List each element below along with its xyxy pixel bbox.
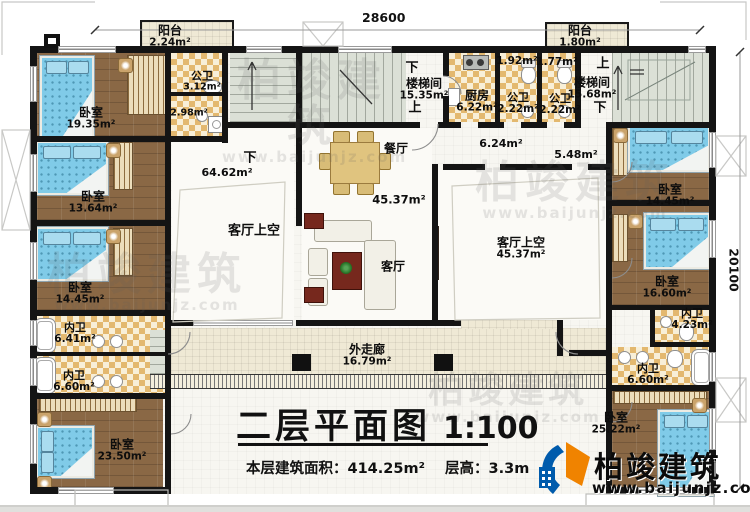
room-area: 13.64m² [69, 204, 118, 216]
stairs-right-down-label: 下 [593, 102, 606, 117]
wall [30, 310, 171, 316]
wall [478, 122, 504, 128]
room-area: 3.12m² [183, 83, 221, 94]
wall [443, 46, 449, 76]
wall [30, 393, 171, 399]
nightstand-lamp [628, 214, 643, 229]
nightstand-lamp [106, 143, 121, 158]
room-area: 1.92m² [496, 56, 537, 68]
room-label-balcony-tl: 阳台2.24m² [149, 24, 190, 49]
window [30, 358, 37, 386]
side-cabinet [304, 213, 324, 229]
area-label-177: 1.77m² [536, 57, 577, 69]
dimension-top: 28600 [362, 10, 406, 25]
void-left-area: 64.62m² [201, 167, 252, 179]
room-label-stairs-right: 楼梯间15.68m² [568, 76, 617, 101]
title-underline [238, 443, 488, 446]
floor-stats: 本层建筑面积：414.25m² 层高：3.3m [246, 457, 529, 478]
wall [228, 122, 420, 128]
floor-height-label: 层高： [445, 461, 489, 477]
room-area: 2.98m² [170, 109, 208, 120]
wall [564, 122, 581, 128]
stairs-left-flight-b [302, 53, 406, 122]
room-label-bedroom-tl: 卧室19.35m² [67, 106, 116, 131]
room-label-balcony-tr: 阳台1.80m² [559, 24, 600, 49]
room-area: 6.41m² [54, 334, 95, 346]
bed-bedroom-l2 [36, 141, 108, 195]
room-label-bedroom-r1: 卧室14.45m² [646, 183, 695, 208]
room-name: 阳台 [559, 24, 600, 37]
window [30, 66, 37, 102]
room-area: 2.24m² [149, 38, 190, 50]
dining-chair [333, 183, 350, 195]
wall [557, 320, 563, 356]
room-name: 厨房 [456, 89, 497, 102]
window [338, 46, 392, 53]
side-cabinet [304, 287, 324, 303]
title-block: 二层平面图1:100 [236, 398, 539, 449]
wall [500, 164, 572, 170]
room-label-bath-l1: 内卫6.41m² [54, 322, 95, 346]
room-name: 楼梯间 [400, 77, 449, 90]
window [58, 487, 114, 494]
room-label-kitchen: 厨房6.22m² [456, 89, 497, 114]
nightstand-lamp [118, 58, 133, 73]
area-label-192: 1.92m² [496, 56, 537, 68]
sink [660, 316, 672, 328]
wall [30, 136, 228, 142]
stairs-left-flight-a [230, 53, 296, 122]
room-label-bedroom-br: 卧室25.22m² [592, 411, 641, 436]
room-area: 2.22m² [539, 105, 580, 117]
room-label-bath-r1: 内卫4.23m² [671, 308, 712, 332]
sink [110, 375, 123, 388]
window [30, 320, 37, 346]
room-area: 5.48m² [554, 149, 597, 161]
window [688, 46, 706, 53]
room-label-bedroom-r2: 卧室16.60m² [643, 275, 692, 300]
area-label-624: 6.24m² [479, 138, 522, 150]
room-label-bath-l2: 内卫6.60m² [53, 370, 94, 394]
bed-bedroom-bl [36, 426, 94, 478]
room-area: 6.60m² [53, 382, 94, 394]
wall [443, 122, 461, 128]
wall [606, 122, 716, 128]
window [30, 154, 37, 192]
nightstand-lamp [106, 229, 121, 244]
bed-bedroom-r1 [628, 126, 710, 172]
nightstand-lamp [613, 128, 628, 143]
floor-area-value: 414.25m² [348, 461, 425, 477]
wall [650, 342, 716, 347]
room-area: 16.79m² [343, 357, 392, 369]
room-name: 外走廊 [343, 343, 392, 356]
room-name: 客厅上空 [228, 225, 280, 240]
wall [650, 305, 655, 347]
window [58, 46, 116, 53]
wall [30, 220, 171, 226]
room-area: 14.45m² [646, 197, 695, 209]
room-area: 15.35m² [400, 91, 449, 103]
wall [443, 164, 485, 170]
room-area: 6.60m² [627, 375, 668, 387]
floor-height-value: 3.3m [489, 461, 530, 477]
wall [569, 350, 609, 356]
armchair [308, 248, 328, 276]
window [30, 242, 37, 280]
room-label-bath-tl: 公卫3.12m² [183, 71, 221, 94]
room-area: 16.60m² [643, 289, 692, 301]
nightstand-lamp [37, 412, 52, 427]
sink [110, 335, 123, 348]
stairs-left-up-label: 上 [408, 102, 421, 117]
room-name: 卧室 [69, 190, 118, 203]
room-name: 餐厅 [384, 142, 408, 155]
room-area: 45.37m² [497, 250, 546, 262]
stove [463, 55, 489, 70]
window [709, 132, 716, 168]
wall [521, 122, 547, 128]
sofa-section [364, 240, 396, 310]
room-label-bath-r2: 内卫6.60m² [627, 363, 668, 387]
dining-table [330, 142, 380, 184]
window [193, 320, 293, 326]
brand-website: www.baijunjz.com [592, 479, 750, 497]
room-label-bath-tl-b: 2.98m² [170, 109, 208, 120]
dimension-right: 20100 [727, 248, 742, 292]
bathtub [34, 318, 56, 353]
living-corridor-threshold [461, 320, 557, 329]
room-label-bedroom-bl: 卧室23.50m² [98, 438, 147, 463]
room-area: 14.45m² [56, 295, 105, 307]
logo-building-shape [566, 442, 590, 486]
drawing-scale: 1:100 [443, 411, 539, 446]
bed-bedroom-r2 [644, 213, 710, 269]
void-left-down-label: 下 [243, 152, 256, 167]
nightstand-lamp [692, 398, 707, 413]
page-title: 二层平面图 [236, 407, 431, 447]
room-name: 阳台 [149, 24, 190, 37]
room-label-living: 客厅 [381, 260, 405, 273]
toilet [667, 350, 683, 368]
room-name: 卧室 [98, 438, 147, 451]
room-name: 客厅上空 [497, 236, 546, 249]
wall [432, 164, 438, 325]
room-label-void-right: 客厅上空45.37m² [497, 236, 546, 261]
wall [296, 46, 302, 128]
room-label-bedroom-l2: 卧室13.64m² [69, 190, 118, 215]
wall [588, 164, 608, 170]
floor-area-label: 本层建筑面积： [246, 461, 348, 477]
room-label-corridor: 外走廊16.79m² [343, 343, 392, 368]
room-area: 6.22m² [456, 103, 497, 115]
wall [165, 320, 195, 326]
room-name: 卧室 [592, 411, 641, 424]
window [246, 46, 282, 53]
floor-plan: 柏竣建筑www.baijunjz.com 柏竣建筑www.baijunjz.co… [0, 0, 750, 512]
room-area: 4.23m² [671, 320, 712, 332]
logo-block [539, 467, 555, 488]
room-area: 1.80m² [559, 38, 600, 50]
room-name: 卧室 [56, 281, 105, 294]
corridor-parapet [150, 374, 608, 389]
window [30, 424, 37, 464]
room-area: 19.35m² [67, 120, 116, 132]
room-name: 卧室 [646, 183, 695, 196]
room-label-stairs-left: 楼梯间15.35m² [400, 77, 449, 102]
room-name: 楼梯间 [568, 76, 617, 89]
area-label-548: 5.48m² [554, 149, 597, 161]
corridor-column [434, 354, 453, 371]
bottom-ground-band [0, 506, 750, 512]
stairs-right-up-label: 上 [596, 58, 609, 73]
closet-bedroom-bl [40, 399, 136, 411]
room-label-bath-c1: 公卫2.22m² [497, 92, 538, 116]
room-name: 客厅 [381, 260, 405, 273]
window [709, 352, 716, 382]
closet-bedroom-tl [128, 56, 165, 114]
brand-logo-icon [532, 440, 594, 504]
room-area: 1.77m² [536, 57, 577, 69]
room-area: 15.68m² [568, 90, 617, 102]
bed-bedroom-l3 [36, 227, 108, 281]
stairs-right [612, 53, 709, 122]
room-area: 2.22m² [497, 104, 538, 116]
room-name: 卧室 [643, 275, 692, 288]
wall [30, 352, 171, 356]
corridor-column [292, 354, 311, 371]
toilet [521, 66, 536, 84]
room-area: 6.24m² [479, 138, 522, 150]
room-label-void-left: 客厅上空 [228, 225, 280, 240]
room-area: 23.50m² [98, 452, 147, 464]
room-name: 卧室 [67, 106, 116, 119]
wall [296, 320, 461, 326]
room-label-bedroom-l3: 卧室14.45m² [56, 281, 105, 306]
wall [296, 122, 302, 226]
closet-bedroom-r2 [613, 215, 627, 261]
stairs-left-down-label: 下 [405, 62, 418, 77]
room-label-dining: 餐厅 [384, 142, 408, 155]
living-area-value: 45.37m² [372, 194, 425, 207]
plant [340, 262, 352, 274]
room-area: 64.62m² [201, 167, 252, 179]
window [709, 220, 716, 258]
room-area: 45.37m² [372, 194, 425, 207]
room-area: 25.22m² [592, 425, 641, 437]
